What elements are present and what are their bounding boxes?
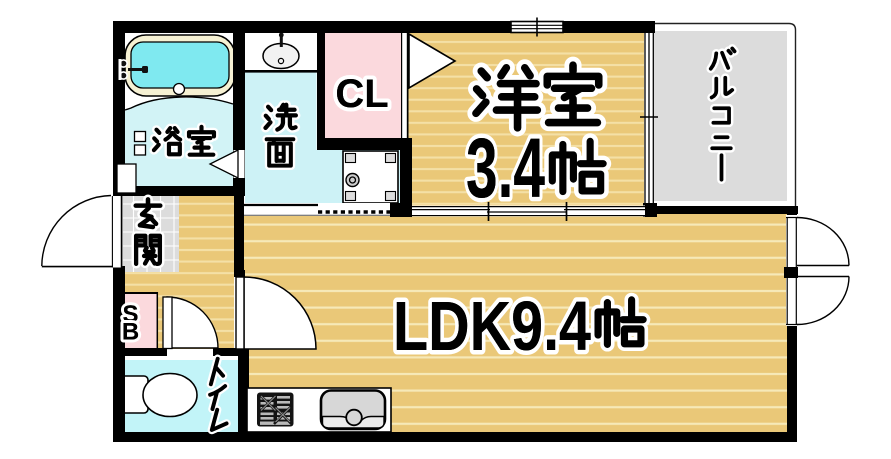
svg-text:B: B bbox=[122, 319, 139, 346]
svg-text:CL: CL bbox=[335, 72, 388, 116]
svg-text:3.4: 3.4 bbox=[466, 121, 545, 215]
svg-text:LDK9.4: LDK9.4 bbox=[393, 287, 591, 365]
